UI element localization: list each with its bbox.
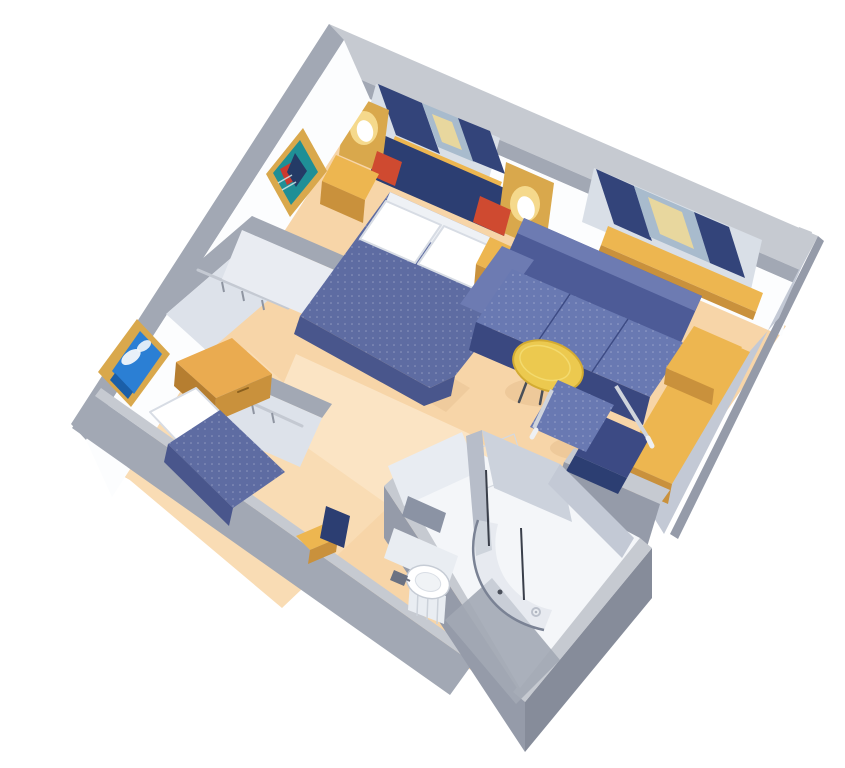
stateroom-floorplan-rendering bbox=[0, 0, 845, 768]
floorplan-scene bbox=[0, 0, 845, 768]
chair-arm-left-cap bbox=[532, 430, 536, 437]
shower-door-handle bbox=[498, 590, 503, 595]
